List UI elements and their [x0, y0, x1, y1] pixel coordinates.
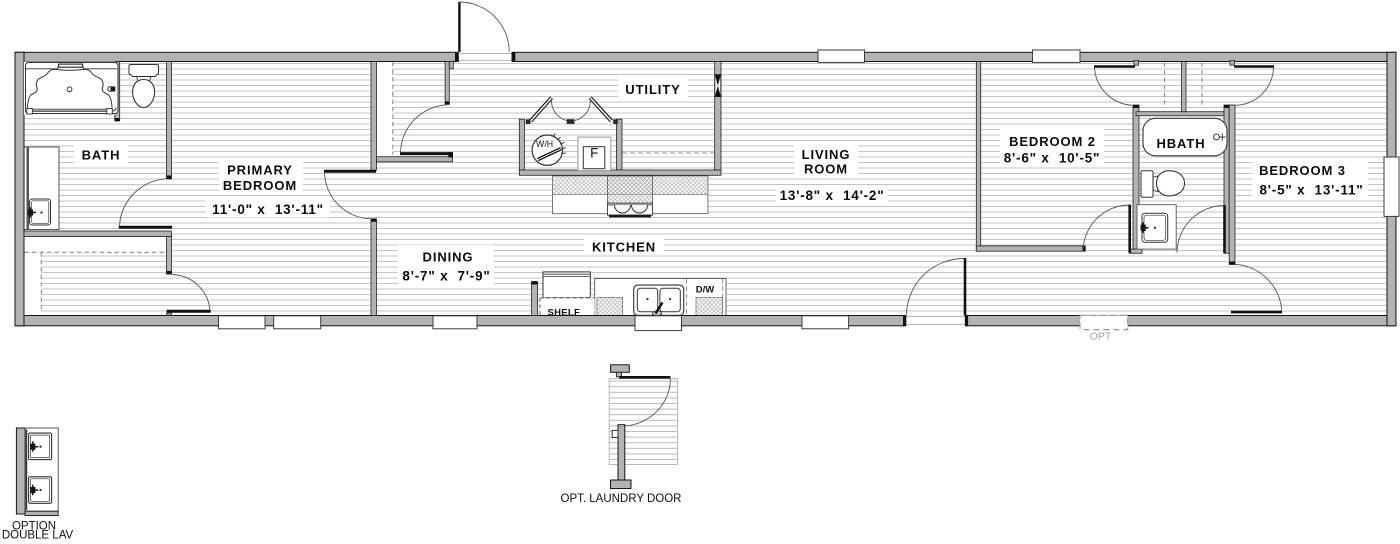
svg-text:KITCHEN: KITCHEN: [592, 240, 656, 255]
svg-text:F: F: [590, 146, 598, 161]
svg-text:SHELF: SHELF: [547, 307, 580, 318]
svg-text:8'-5" x 13'-11": 8'-5" x 13'-11": [1259, 182, 1363, 197]
svg-text:ROOM: ROOM: [804, 162, 848, 177]
svg-text:DINING: DINING: [423, 249, 474, 264]
svg-text:OPT: OPT: [1090, 331, 1112, 343]
svg-text:11'-0" x 13'-11": 11'-0" x 13'-11": [212, 202, 324, 217]
svg-text:UTILITY: UTILITY: [625, 82, 680, 97]
svg-text:D/W: D/W: [696, 285, 715, 296]
svg-text:PRIMARY: PRIMARY: [227, 163, 293, 178]
svg-text:W/H: W/H: [536, 139, 553, 149]
svg-text:BEDROOM: BEDROOM: [223, 178, 297, 193]
svg-text:BEDROOM 3: BEDROOM 3: [1259, 163, 1346, 178]
svg-text:BATH: BATH: [82, 148, 121, 163]
svg-text:OPT. LAUNDRY DOOR: OPT. LAUNDRY DOOR: [561, 493, 682, 505]
svg-text:13'-8" x 14'-2": 13'-8" x 14'-2": [780, 188, 885, 203]
svg-text:LIVING: LIVING: [802, 147, 851, 162]
svg-text:DOUBLE LAV: DOUBLE LAV: [2, 529, 74, 541]
svg-text:HBATH: HBATH: [1156, 136, 1205, 151]
svg-text:8'-6" x 10'-5": 8'-6" x 10'-5": [1004, 150, 1101, 165]
svg-text:8'-7" x 7'-9": 8'-7" x 7'-9": [402, 268, 490, 283]
svg-text:BEDROOM 2: BEDROOM 2: [1009, 134, 1096, 149]
